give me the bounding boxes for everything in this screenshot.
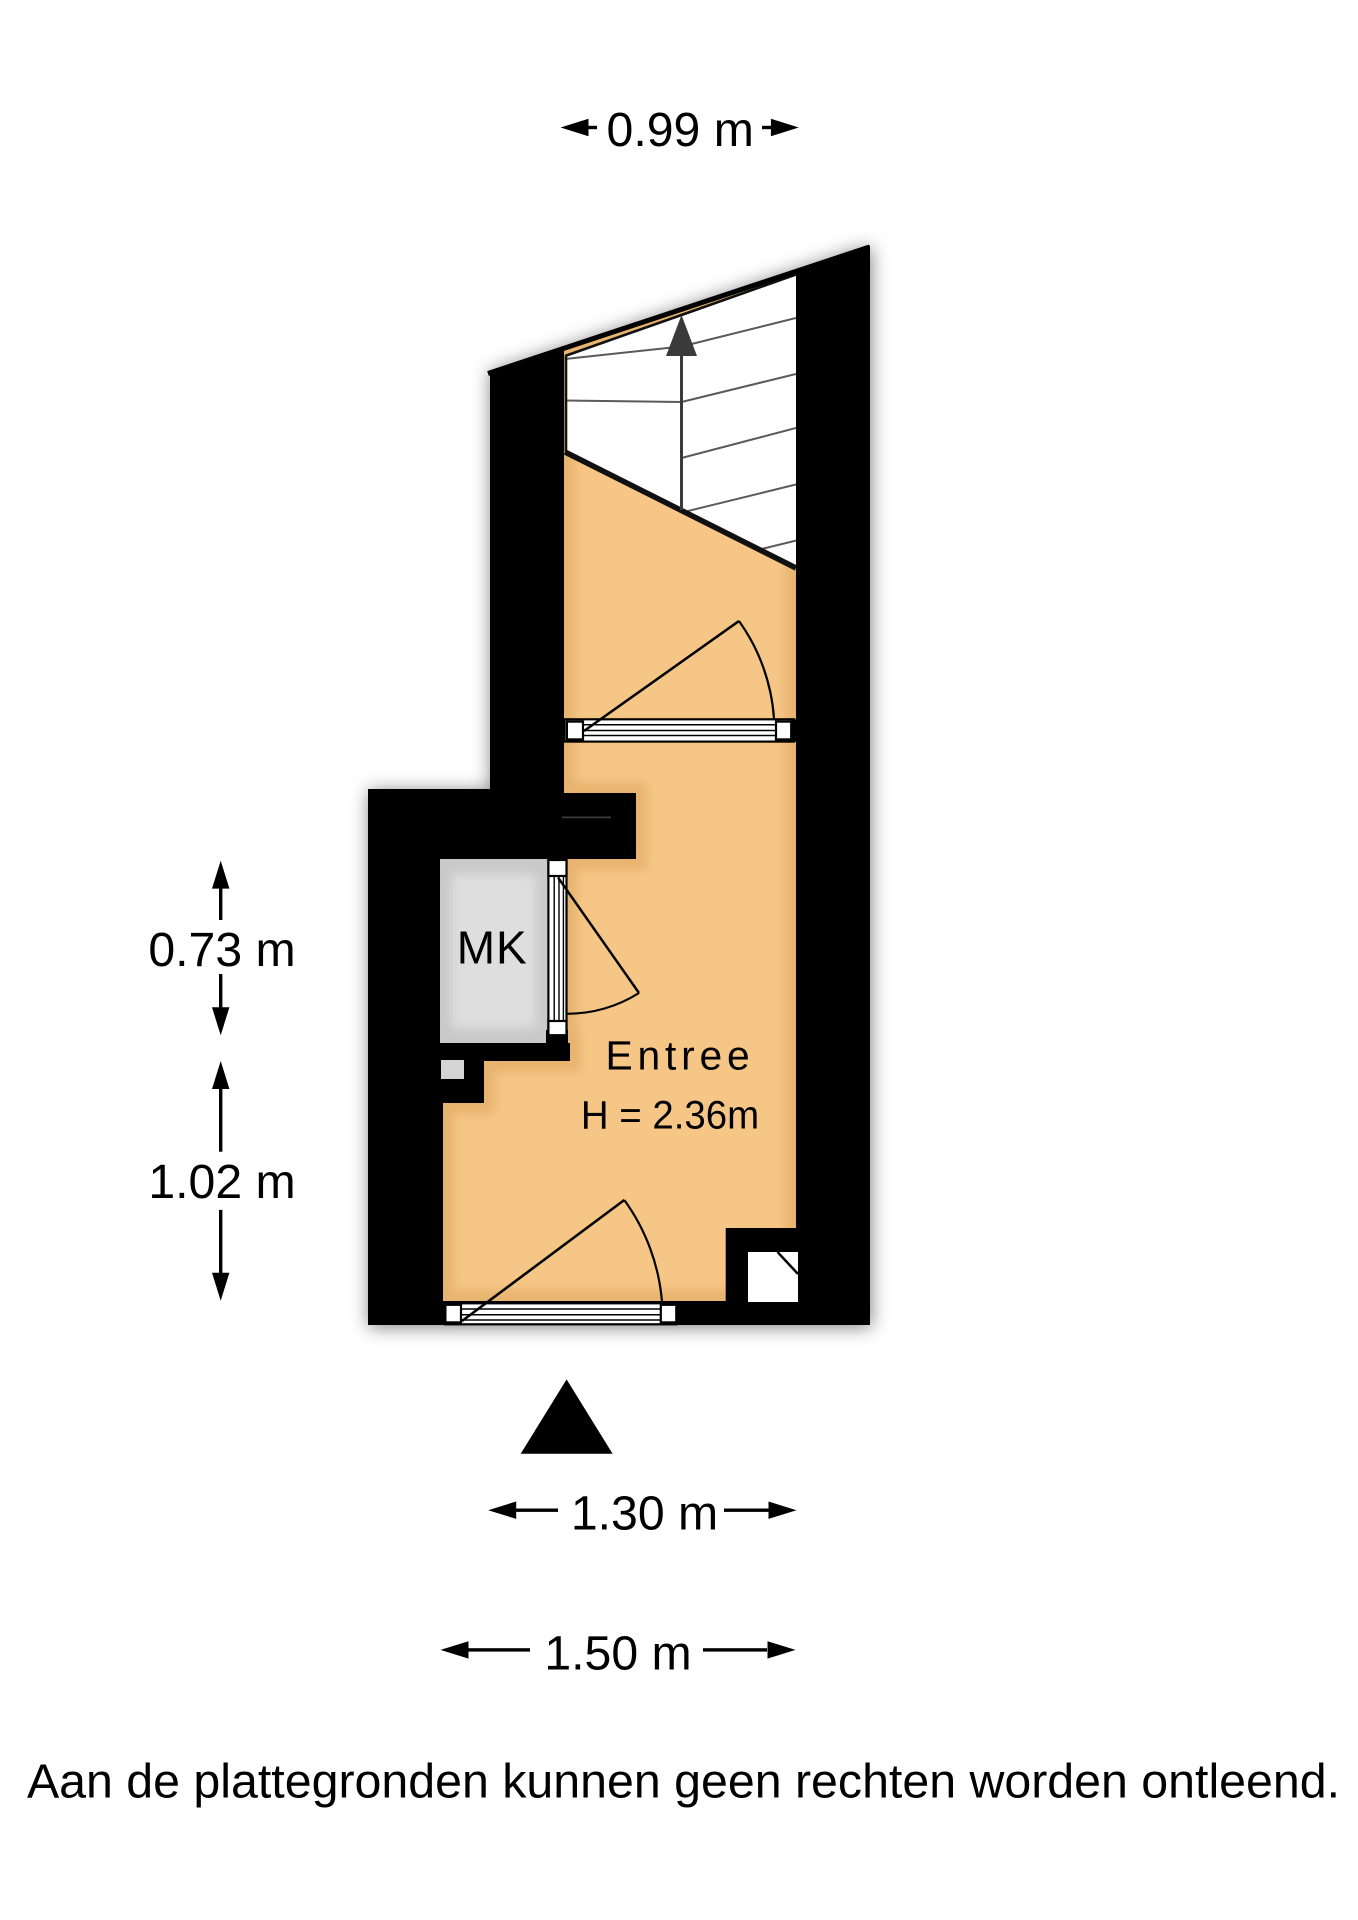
svg-text:Entree: Entree (606, 1032, 755, 1078)
svg-text:0.99 m: 0.99 m (607, 103, 754, 157)
svg-text:H = 2.36m: H = 2.36m (581, 1094, 759, 1138)
svg-text:1.50 m: 1.50 m (544, 1626, 691, 1680)
svg-text:MK: MK (457, 922, 528, 974)
svg-text:1.30 m: 1.30 m (571, 1487, 718, 1541)
svg-text:Aan de plattegronden kunnen ge: Aan de plattegronden kunnen geen rechten… (27, 1755, 1340, 1809)
svg-text:0.73 m: 0.73 m (148, 923, 295, 977)
svg-text:1.02 m: 1.02 m (148, 1155, 295, 1209)
